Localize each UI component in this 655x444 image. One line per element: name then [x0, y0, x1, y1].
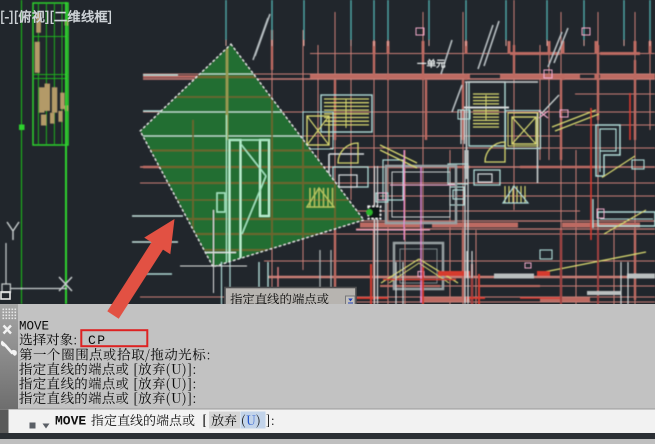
- svg-text:(U): (U): [241, 410, 261, 429]
- svg-text:一单元: 一单元: [417, 56, 446, 70]
- svg-text:指定直线的端点或: 指定直线的端点或: [90, 410, 195, 429]
- svg-text:放弃: 放弃: [211, 410, 237, 429]
- svg-text:MOVE: MOVE: [55, 414, 86, 429]
- svg-text:[-][俯视][二维线框]: [-][俯视][二维线框]: [0, 6, 112, 26]
- svg-text:]:: ]:: [266, 410, 275, 429]
- svg-text:[: [: [202, 410, 207, 429]
- svg-text:指定直线的端点或 [放弃(U)]:: 指定直线的端点或 [放弃(U)]:: [19, 387, 197, 407]
